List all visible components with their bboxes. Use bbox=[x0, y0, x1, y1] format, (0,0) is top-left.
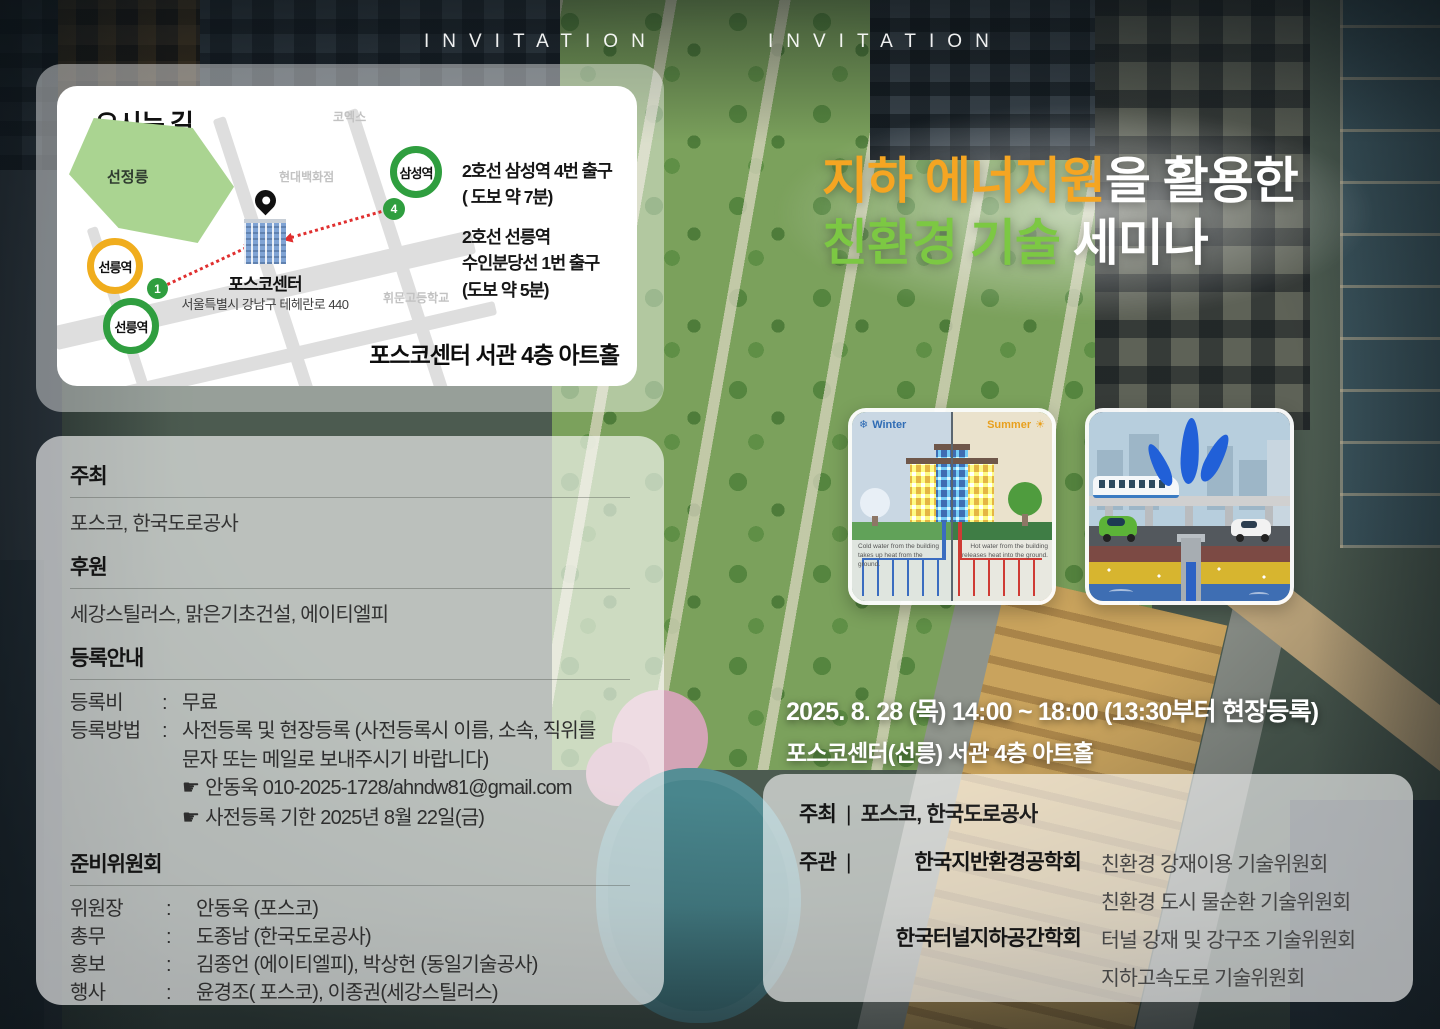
building-left-wing bbox=[910, 464, 936, 522]
invitation-text-left: INVITATION bbox=[424, 31, 658, 53]
committee-row-pr: 홍보 : 김종언 (에이티엘피), 박상헌 (동일기술공사) bbox=[70, 951, 630, 979]
registration-method-row: 등록방법 : 사전등록 및 현장등록 (사전등록시 이름, 소속, 직위를 문자… bbox=[70, 717, 630, 774]
org-organizer-label: 주관 bbox=[799, 846, 836, 876]
committee-role: 홍보 bbox=[70, 951, 166, 979]
registration-note-deadline: ☛사전등록 기한 2025년 8월 22일(금) bbox=[182, 804, 630, 834]
info-panel: 주최 포스코, 한국도로공사 후원 세강스틸러스, 맑은기초건설, 에이티엘피 … bbox=[36, 436, 664, 1005]
figure-geothermal-diagram: ❄ Winter Summer ☀ Cold water from the bu… bbox=[848, 408, 1056, 605]
registration-notes: ☛안동욱 010-2025-1728/ahndw81@gmail.com ☛사전… bbox=[182, 774, 630, 833]
org-names-column: 주관 | 한국지반환경공학회 한국터널지하공간학회 bbox=[799, 846, 1081, 998]
direction-seolleung-line2: 수인분당선 1번 출구 bbox=[462, 250, 632, 276]
divider bbox=[70, 679, 630, 680]
winter-caption: Cold water from the building takes up he… bbox=[858, 543, 946, 569]
org-committees-column: 친환경 강재이용 기술위원회 친환경 도시 물순환 기술위원회 터널 강재 및 … bbox=[1101, 846, 1355, 998]
venue-address: 서울특별시 강남구 테헤란로 440 bbox=[145, 294, 385, 313]
committee-members: 윤경조( 포스코), 이종권(세강스틸러스) bbox=[196, 979, 498, 1005]
org-grid: 주관 | 한국지반환경공학회 한국터널지하공간학회 친환경 강재이용 기술위원회… bbox=[799, 846, 1377, 998]
direction-samseong: 2호선 삼성역 4번 출구 ( 도보 약 7분) bbox=[462, 158, 632, 211]
water-wave bbox=[1249, 592, 1269, 598]
committee-role: 총무 bbox=[70, 923, 166, 951]
registration-note-contact: ☛안동욱 010-2025-1728/ahndw81@gmail.com bbox=[182, 774, 630, 804]
car-wheel bbox=[1236, 534, 1244, 542]
tree-trunk bbox=[1022, 514, 1028, 526]
method-value: 사전등록 및 현장등록 (사전등록시 이름, 소속, 직위를 문자 또는 메일로… bbox=[182, 717, 596, 774]
title-line2-rest: 세미나 bbox=[1060, 215, 1208, 271]
committee-members: 김종언 (에이티엘피), 박상헌 (동일기술공사) bbox=[196, 951, 538, 979]
invitation-text-right: INVITATION bbox=[768, 31, 1002, 53]
white-car-window bbox=[1241, 521, 1257, 528]
direction-samseong-line1: 2호선 삼성역 4번 출구 bbox=[462, 158, 632, 184]
invitation-poster: INVITATION INVITATION 지하 에너지원을 활용한 친환경 기… bbox=[0, 0, 1440, 1029]
host-heading: 주최 bbox=[70, 460, 630, 490]
fee-value: 무료 bbox=[182, 689, 217, 717]
season-divider bbox=[951, 412, 953, 601]
divider bbox=[70, 497, 630, 498]
sponsor-heading: 후원 bbox=[70, 551, 630, 581]
train-windows bbox=[1099, 480, 1167, 488]
contact-text: 안동욱 010-2025-1728/ahndw81@gmail.com bbox=[205, 777, 572, 799]
summer-label: Summer ☀ bbox=[987, 418, 1045, 431]
pointing-hand-icon: ☛ bbox=[182, 807, 199, 829]
committee-role: 위원장 bbox=[70, 895, 166, 923]
org-host-row: 주최 | 포스코, 한국도로공사 bbox=[799, 798, 1377, 828]
section-registration: 등록안내 등록비 : 무료 등록방법 : 사전등록 및 현장등록 (사전등록시 … bbox=[70, 642, 630, 833]
map-poi-coex: 코엑스 bbox=[333, 108, 366, 125]
org2-name: 한국터널지하공간학회 bbox=[896, 922, 1081, 952]
direction-seolleung-line1: 2호선 선릉역 bbox=[462, 224, 632, 250]
method-line2: 문자 또는 메일로 보내주시기 바랍니다) bbox=[182, 749, 489, 771]
org-organizer-row: 주관 | 한국지반환경공학회 bbox=[799, 846, 1081, 876]
committee-members: 도종남 (한국도로공사) bbox=[196, 923, 371, 951]
sun-icon: ☀ bbox=[1035, 418, 1045, 431]
seminar-title: 지하 에너지원을 활용한 친환경 기술 세미나 bbox=[822, 150, 1298, 274]
car-wheel bbox=[1103, 534, 1111, 542]
pointing-hand-icon: ☛ bbox=[182, 777, 199, 799]
well-water bbox=[1186, 562, 1196, 601]
building-right-wing bbox=[968, 464, 994, 522]
hot-ground-loops bbox=[958, 558, 1042, 596]
map-card: 오시는 길 선정릉 코엑스 현대백화점 휘문고등학교 삼성역 4 선릉역 1 선… bbox=[57, 86, 637, 386]
organizer-panel: 주최 | 포스코, 한국도로공사 주관 | 한국지반환경공학회 한국터널지하공간… bbox=[763, 774, 1413, 1002]
method-label: 등록방법 bbox=[70, 717, 162, 774]
org1-committee1: 친환경 강재이용 기술위원회 bbox=[1101, 846, 1355, 884]
colon: : bbox=[166, 895, 196, 923]
committee-role: 행사 bbox=[70, 979, 166, 1005]
car-wheel bbox=[1127, 534, 1135, 542]
venue-hall: 포스코센터 서관 4층 아트홀 bbox=[369, 336, 619, 370]
divider bbox=[70, 588, 630, 589]
winter-grass bbox=[852, 522, 952, 540]
title-line2: 친환경 기술 세미나 bbox=[822, 212, 1298, 274]
summer-tree bbox=[1008, 482, 1042, 516]
title-line1-highlight: 지하 에너지원 bbox=[822, 153, 1105, 209]
method-colon: : bbox=[162, 717, 182, 774]
map-park-area bbox=[69, 118, 234, 243]
divider bbox=[70, 885, 630, 886]
registration-fee-row: 등록비 : 무료 bbox=[70, 689, 630, 717]
direction-samseong-line2: ( 도보 약 7분) bbox=[462, 184, 632, 210]
title-line1: 지하 에너지원을 활용한 bbox=[822, 150, 1298, 212]
map-poi-hyundai: 현대백화점 bbox=[279, 168, 334, 185]
org2-committee2: 지하고속도로 기술위원회 bbox=[1101, 960, 1355, 998]
sponsor-body: 세강스틸러스, 맑은기초건설, 에이티엘피 bbox=[70, 598, 630, 627]
station-seolleung-yellow: 선릉역 bbox=[87, 238, 143, 294]
committee-heading: 준비위원회 bbox=[70, 848, 630, 878]
separator: | bbox=[846, 803, 851, 827]
org-host-value: 포스코, 한국도로공사 bbox=[861, 798, 1038, 828]
summer-text: Summer bbox=[987, 419, 1031, 431]
map-park-label: 선정릉 bbox=[107, 166, 148, 187]
posco-center-building-icon bbox=[244, 219, 286, 264]
water-wave bbox=[1109, 589, 1133, 595]
deadline-text: 사전등록 기한 2025년 8월 22일(금) bbox=[205, 807, 484, 829]
winter-text: Winter bbox=[872, 419, 906, 431]
snowflake-icon: ❄ bbox=[859, 418, 868, 431]
section-host: 주최 포스코, 한국도로공사 bbox=[70, 460, 630, 536]
car-wheel bbox=[1261, 534, 1269, 542]
org1-committee2: 친환경 도시 물순환 기술위원회 bbox=[1101, 884, 1355, 922]
org-host-label: 주최 bbox=[799, 798, 836, 828]
event-info: 2025. 8. 28 (목) 14:00 ~ 18:00 (13:30부터 현… bbox=[786, 692, 1318, 768]
method-line1: 사전등록 및 현장등록 (사전등록시 이름, 소속, 직위를 bbox=[182, 720, 596, 742]
direction-seolleung: 2호선 선릉역 수인분당선 1번 출구 (도보 약 5분) bbox=[462, 224, 632, 303]
registration-heading: 등록안내 bbox=[70, 642, 630, 672]
host-body: 포스코, 한국도로공사 bbox=[70, 507, 630, 536]
tree-trunk bbox=[872, 516, 878, 526]
venue-name: 포스코센터 bbox=[205, 270, 325, 295]
direction-seolleung-line3: (도보 약 5분) bbox=[462, 277, 632, 303]
winter-tree bbox=[860, 488, 890, 518]
committee-members: 안동욱 (포스코) bbox=[196, 895, 318, 923]
colon: : bbox=[166, 923, 196, 951]
summer-grass bbox=[952, 522, 1052, 540]
org2-committee1: 터널 강재 및 강구조 기술위원회 bbox=[1101, 922, 1355, 960]
route-from-samseong bbox=[291, 208, 388, 238]
section-committee: 준비위원회 위원장 : 안동욱 (포스코) 총무 : 도종남 (한국도로공사) … bbox=[70, 848, 630, 1005]
map-poi-whimoon: 휘문고등학교 bbox=[383, 289, 449, 306]
committee-row-chair: 위원장 : 안동욱 (포스코) bbox=[70, 895, 630, 923]
figure-groundwater-diagram bbox=[1085, 408, 1294, 605]
title-line2-highlight: 친환경 기술 bbox=[822, 215, 1060, 271]
event-datetime: 2025. 8. 28 (목) 14:00 ~ 18:00 (13:30부터 현… bbox=[786, 692, 1318, 728]
station-samseong-exit-badge: 4 bbox=[383, 198, 405, 220]
colon: : bbox=[166, 979, 196, 1005]
committee-row-secretary: 총무 : 도종남 (한국도로공사) bbox=[70, 923, 630, 951]
fee-label: 등록비 bbox=[70, 689, 162, 717]
colon: : bbox=[166, 951, 196, 979]
winter-label: ❄ Winter bbox=[859, 418, 906, 431]
org1-name: 한국지반환경공학회 bbox=[914, 846, 1081, 876]
title-line1-rest: 을 활용한 bbox=[1105, 153, 1298, 209]
committee-row-event: 행사 : 윤경조( 포스코), 이종권(세강스틸러스) bbox=[70, 979, 630, 1005]
section-sponsor: 후원 세강스틸러스, 맑은기초건설, 에이티엘피 bbox=[70, 551, 630, 627]
green-car-window bbox=[1107, 518, 1125, 526]
station-samseong: 삼성역 bbox=[390, 146, 442, 198]
summer-caption: Hot water from the building releases hea… bbox=[960, 543, 1048, 561]
event-venue: 포스코센터(선릉) 서관 4층 아트홀 bbox=[786, 734, 1318, 768]
fee-colon: : bbox=[162, 689, 182, 717]
separator: | bbox=[846, 851, 851, 875]
